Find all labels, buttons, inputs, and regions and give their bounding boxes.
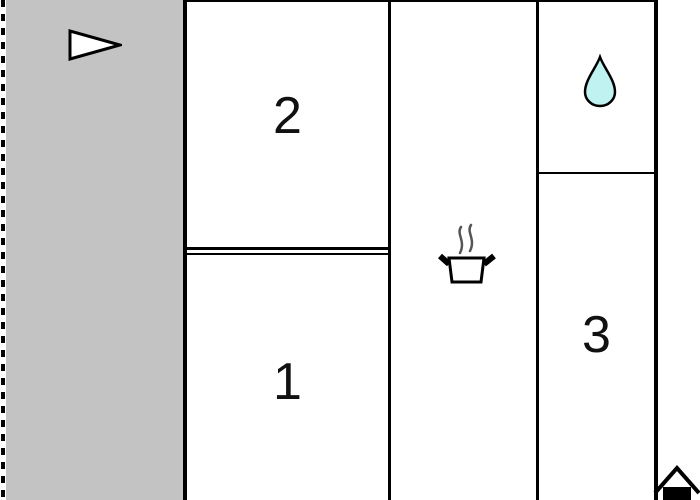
house-icon: [653, 462, 700, 500]
room-1: 1: [187, 255, 388, 500]
room-3: 3: [539, 174, 654, 500]
wall-rooms-kitchen: [388, 0, 391, 500]
terrace-area: [6, 0, 183, 500]
wall-top: [183, 0, 658, 2]
water-drop-icon: [583, 54, 617, 108]
dashed-boundary-line: [1, 0, 5, 500]
room-2-label: 2: [273, 86, 302, 146]
floor-plan: 2 1 3: [0, 0, 700, 500]
wall-room1-top: [183, 253, 391, 255]
room-3-label: 3: [582, 305, 611, 365]
wall-terrace-rooms: [183, 0, 187, 500]
wall-bathroom-room3: [536, 172, 658, 174]
wall-kitchen-right: [536, 0, 539, 500]
wall-room2-bottom: [183, 247, 391, 250]
direction-arrow-icon: [66, 27, 122, 63]
room-2: 2: [187, 2, 388, 248]
room-1-label: 1: [273, 352, 302, 412]
cooking-pot-icon: [437, 222, 499, 286]
wall-outer-right: [654, 0, 658, 500]
